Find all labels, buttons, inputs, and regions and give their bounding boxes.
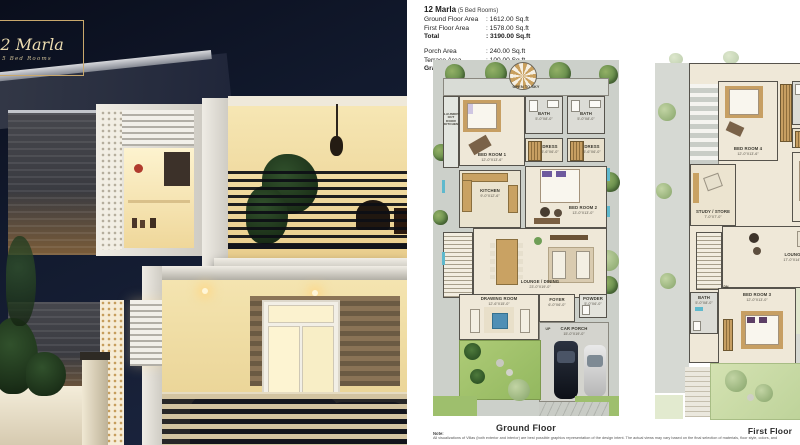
pillar-cap [80,352,110,360]
toilet-graphic [693,321,701,331]
room-study-store: STUDY / STORE 7'-0"X7'-0" [690,164,736,226]
area-row: Porch Area : 240.00 Sq.ft [424,48,644,57]
bush-graphic [508,379,530,401]
area-row: First Floor Area : 1578.00 Sq.ft [424,25,644,34]
desk-graphic [693,173,699,203]
kitchen-cabinet-silhouette [164,152,190,186]
room-dims: 12'-6"X15'-0" [460,302,538,306]
room-bath-top: BATH 5'-0"X8'-0" [792,81,800,125]
disclaimer-note: Note: All visualizations of Villas (both… [433,431,799,440]
room-dims: 13'-0"X13'-0" [793,209,800,213]
balcony-railing [228,166,407,246]
palm-tree-graphic [464,343,481,360]
room-dims: 23'-0"X19'-0" [474,285,606,289]
balcony-ceiling [228,96,407,106]
chair-graphic [703,173,723,192]
room-dims: 17'-0"X14'-0" [763,258,800,262]
balcony [228,96,407,262]
bush-graphic [755,384,773,402]
jali-screen-upper [100,110,122,250]
sink-graphic [589,100,601,108]
bottle-silhouette [150,218,156,228]
bottle-silhouette [132,218,137,228]
terrace-gray [796,334,800,364]
terrace-lawn [710,363,800,420]
pergola-graphic [690,84,719,164]
car-graphic-black [554,341,578,399]
shrub [26,352,66,396]
room-powder: POWDER 5'-0"X6'-0" [579,294,607,318]
door-leaf [268,326,300,395]
wardrobe-graphic [723,319,733,351]
lit-kitchen-window [124,148,194,248]
window-accent [442,180,445,193]
entrance-door-frame [262,300,340,400]
stepping-stone-graphic [747,394,754,401]
up-label-wrap: UP [541,328,555,332]
room-dims: 12'-0"X13'-6" [460,158,524,162]
white-pier [202,98,228,276]
room-drawing-room: DRAWING ROOM 12'-6"X15'-0" [459,294,539,340]
tree-graphic [658,103,676,121]
wardrobe-graphic [780,84,792,142]
terrace-steps-graphic [685,367,710,417]
palm-tree-graphic [470,369,485,384]
room-dress-2: DRESS 5'-6"X6'-0" [567,138,605,162]
room-dims: 7'-0"X7'-0" [691,215,735,219]
stone-cladding-upper [8,110,98,255]
driveway [539,402,609,416]
toilet-graphic [571,100,580,112]
room-dress-first: DRESS 5'-6"X6'-0" [792,128,800,148]
stairs-graphic [443,232,473,298]
tree-graphic [433,210,448,225]
room-lounge-dining: LOUNGE / DINING 23'-0"X19'-0" [473,228,607,298]
pillow-graphic [468,104,473,114]
wardrobe-graphic [795,131,800,148]
up-label: UP [541,328,555,332]
room-dims: 5'-6"X6'-0" [580,150,604,154]
room-dims: 5'-6"X6'-0" [538,150,562,154]
room-lounge-first: LOUNGE 17'-0"X14'-0" [722,226,800,288]
green-verge [433,396,477,416]
room-dims: 12'-0"X13'-6" [719,152,777,156]
pillow-graphic [747,317,755,323]
car-graphic-silver [584,345,606,397]
tree-graphic [660,273,676,289]
area-row: Ground Floor Area : 1612.00 Sq.ft [424,16,644,25]
ground-floor-plan: OPEN TO SKY LAUNDRY OUT DOOR KITCHEN BED… [433,60,619,416]
room-bath-2: BATH 5'-0"X8'-0" [567,96,605,134]
tree-graphic [656,183,672,199]
room-dims: 5'-0"X8'-0" [568,117,604,121]
stepping-stone-graphic [506,369,513,376]
exterior-render-photo: 12 Marla 5 Bed Rooms [0,0,407,445]
room-label: STUDY / STORE [691,210,735,215]
car-windshield [587,355,603,367]
room-laundry: LAUNDRY OUT DOOR KITCHEN [443,96,459,168]
room-bed-room-2: BED ROOM 2 13'-0"X13'-0" [525,166,607,228]
canopy-beam [142,266,407,280]
round-table-graphic [749,233,759,243]
tv-console-graphic [550,235,588,240]
window-accent [442,252,445,265]
plant-pot-graphic [534,237,542,245]
plan-title: 12 Marla (5 Bed Rooms) [424,5,644,16]
sofa-graphic [520,309,530,333]
front-fence [162,392,407,445]
room-bed-room-1: BED ROOM 1 12'-0"X13'-6" [459,96,525,166]
toilet-graphic [795,84,800,95]
room-bed-room-4: BED ROOM 4 12'-0"X13'-6" [718,81,778,161]
room-bed-room-5: BED ROOM 5 13'-0"X13'-0" [792,152,800,222]
toilet-graphic [582,305,590,315]
sofa-graphic [470,309,480,333]
badge-title: 12 Marla [0,35,64,54]
sofa-graphic [576,251,590,279]
stepping-stone-graphic [496,359,504,367]
sofa-graphic [552,251,566,279]
sink-graphic [547,100,559,108]
counter-shelf [128,200,190,203]
toilet-graphic [529,100,538,112]
room-dims: 5'-0"X8'-0" [526,117,562,121]
downlight [202,288,208,294]
room-dims: 12'-0"X13'-0" [719,298,795,302]
room-dims: 9'-0"X12'-6" [460,194,520,198]
room-dims: 15'-0"X19'-0" [540,332,608,336]
pendant-cord [336,104,338,138]
car-windshield [557,351,575,363]
dn-label: DN [720,286,732,290]
railing-base [228,244,407,249]
room-dims: 6'-0"X6'-0" [540,303,574,307]
front-lawn [459,340,541,400]
dresser-graphic [534,218,560,224]
note-body: All visualizations of Villas (both exter… [433,436,799,440]
planter-area [796,288,800,334]
shrub [6,236,36,326]
door-leaf [302,326,334,395]
area-row-total: Total : 3190.00 Sq.ft [424,33,644,42]
room-bed-room-3: BED ROOM 3 12'-0"X13'-0" [718,288,796,364]
gate-pillar [82,352,108,445]
laundry-label: LAUNDRY OUT DOOR KITCHEN [444,113,458,127]
room-dims: 5'-0"X8'-0" [793,103,800,107]
room-dress-1: DRESS 5'-6"X6'-0" [525,138,563,162]
side-walk [655,63,689,393]
window-accent [607,206,610,217]
room-dims: 13'-0"X13'-0" [560,211,606,215]
ottoman-graphic [540,207,550,217]
room-dims: 5'-0"X6'-0" [580,302,606,306]
round-table-graphic [753,247,761,255]
dn-label-wrap: DN [720,286,732,290]
pillow-graphic [542,171,552,177]
dining-chairs-graphic [490,243,495,279]
first-floor-plan: BED ROOM 4 12'-0"X13'-6" BATH 5'-0"X8'-0… [655,55,800,425]
tub-graphic [695,307,703,311]
room-car-porch: CAR PORCH 15'-0"X19'-0" [539,322,609,402]
dining-chairs-graphic [518,243,523,279]
green-verge [655,395,683,419]
window-accent [607,168,610,181]
center-table-graphic [492,313,508,329]
door-transom [268,305,334,323]
marla-badge: 12 Marla 5 Bed Rooms [0,20,84,76]
bottle-silhouette [140,220,145,228]
room-foyer: FOYER 6'-0"X6'-0" [539,294,575,322]
pendant-lamp [330,136,343,156]
stairs-graphic [696,232,722,290]
open-to-sky-label: OPEN TO SKY [444,85,608,89]
room-dims: 5'-0"X8'-0" [691,301,717,305]
brochure-page: 12 Marla 5 Bed Rooms 12 Marla (5 Bed Roo… [0,0,800,445]
pillow-graphic [556,171,566,177]
dining-table-graphic [496,239,518,285]
wall-clock [134,164,143,173]
room-bath-1: BATH 5'-0"X8'-0" [525,96,563,134]
badge-subtitle: 5 Bed Rooms [2,56,52,62]
first-floor-house: BED ROOM 4 12'-0"X13'-6" BATH 5'-0"X8'-0… [689,63,800,363]
rug-graphic [726,121,745,137]
room-bath-mid: BATH 5'-0"X8'-0" [690,292,718,334]
pillow-graphic [759,317,767,323]
room-kitchen: KITCHEN 9'-0"X12'-6" [459,170,521,228]
bed-graphic [729,89,759,115]
bush-graphic [725,370,747,392]
